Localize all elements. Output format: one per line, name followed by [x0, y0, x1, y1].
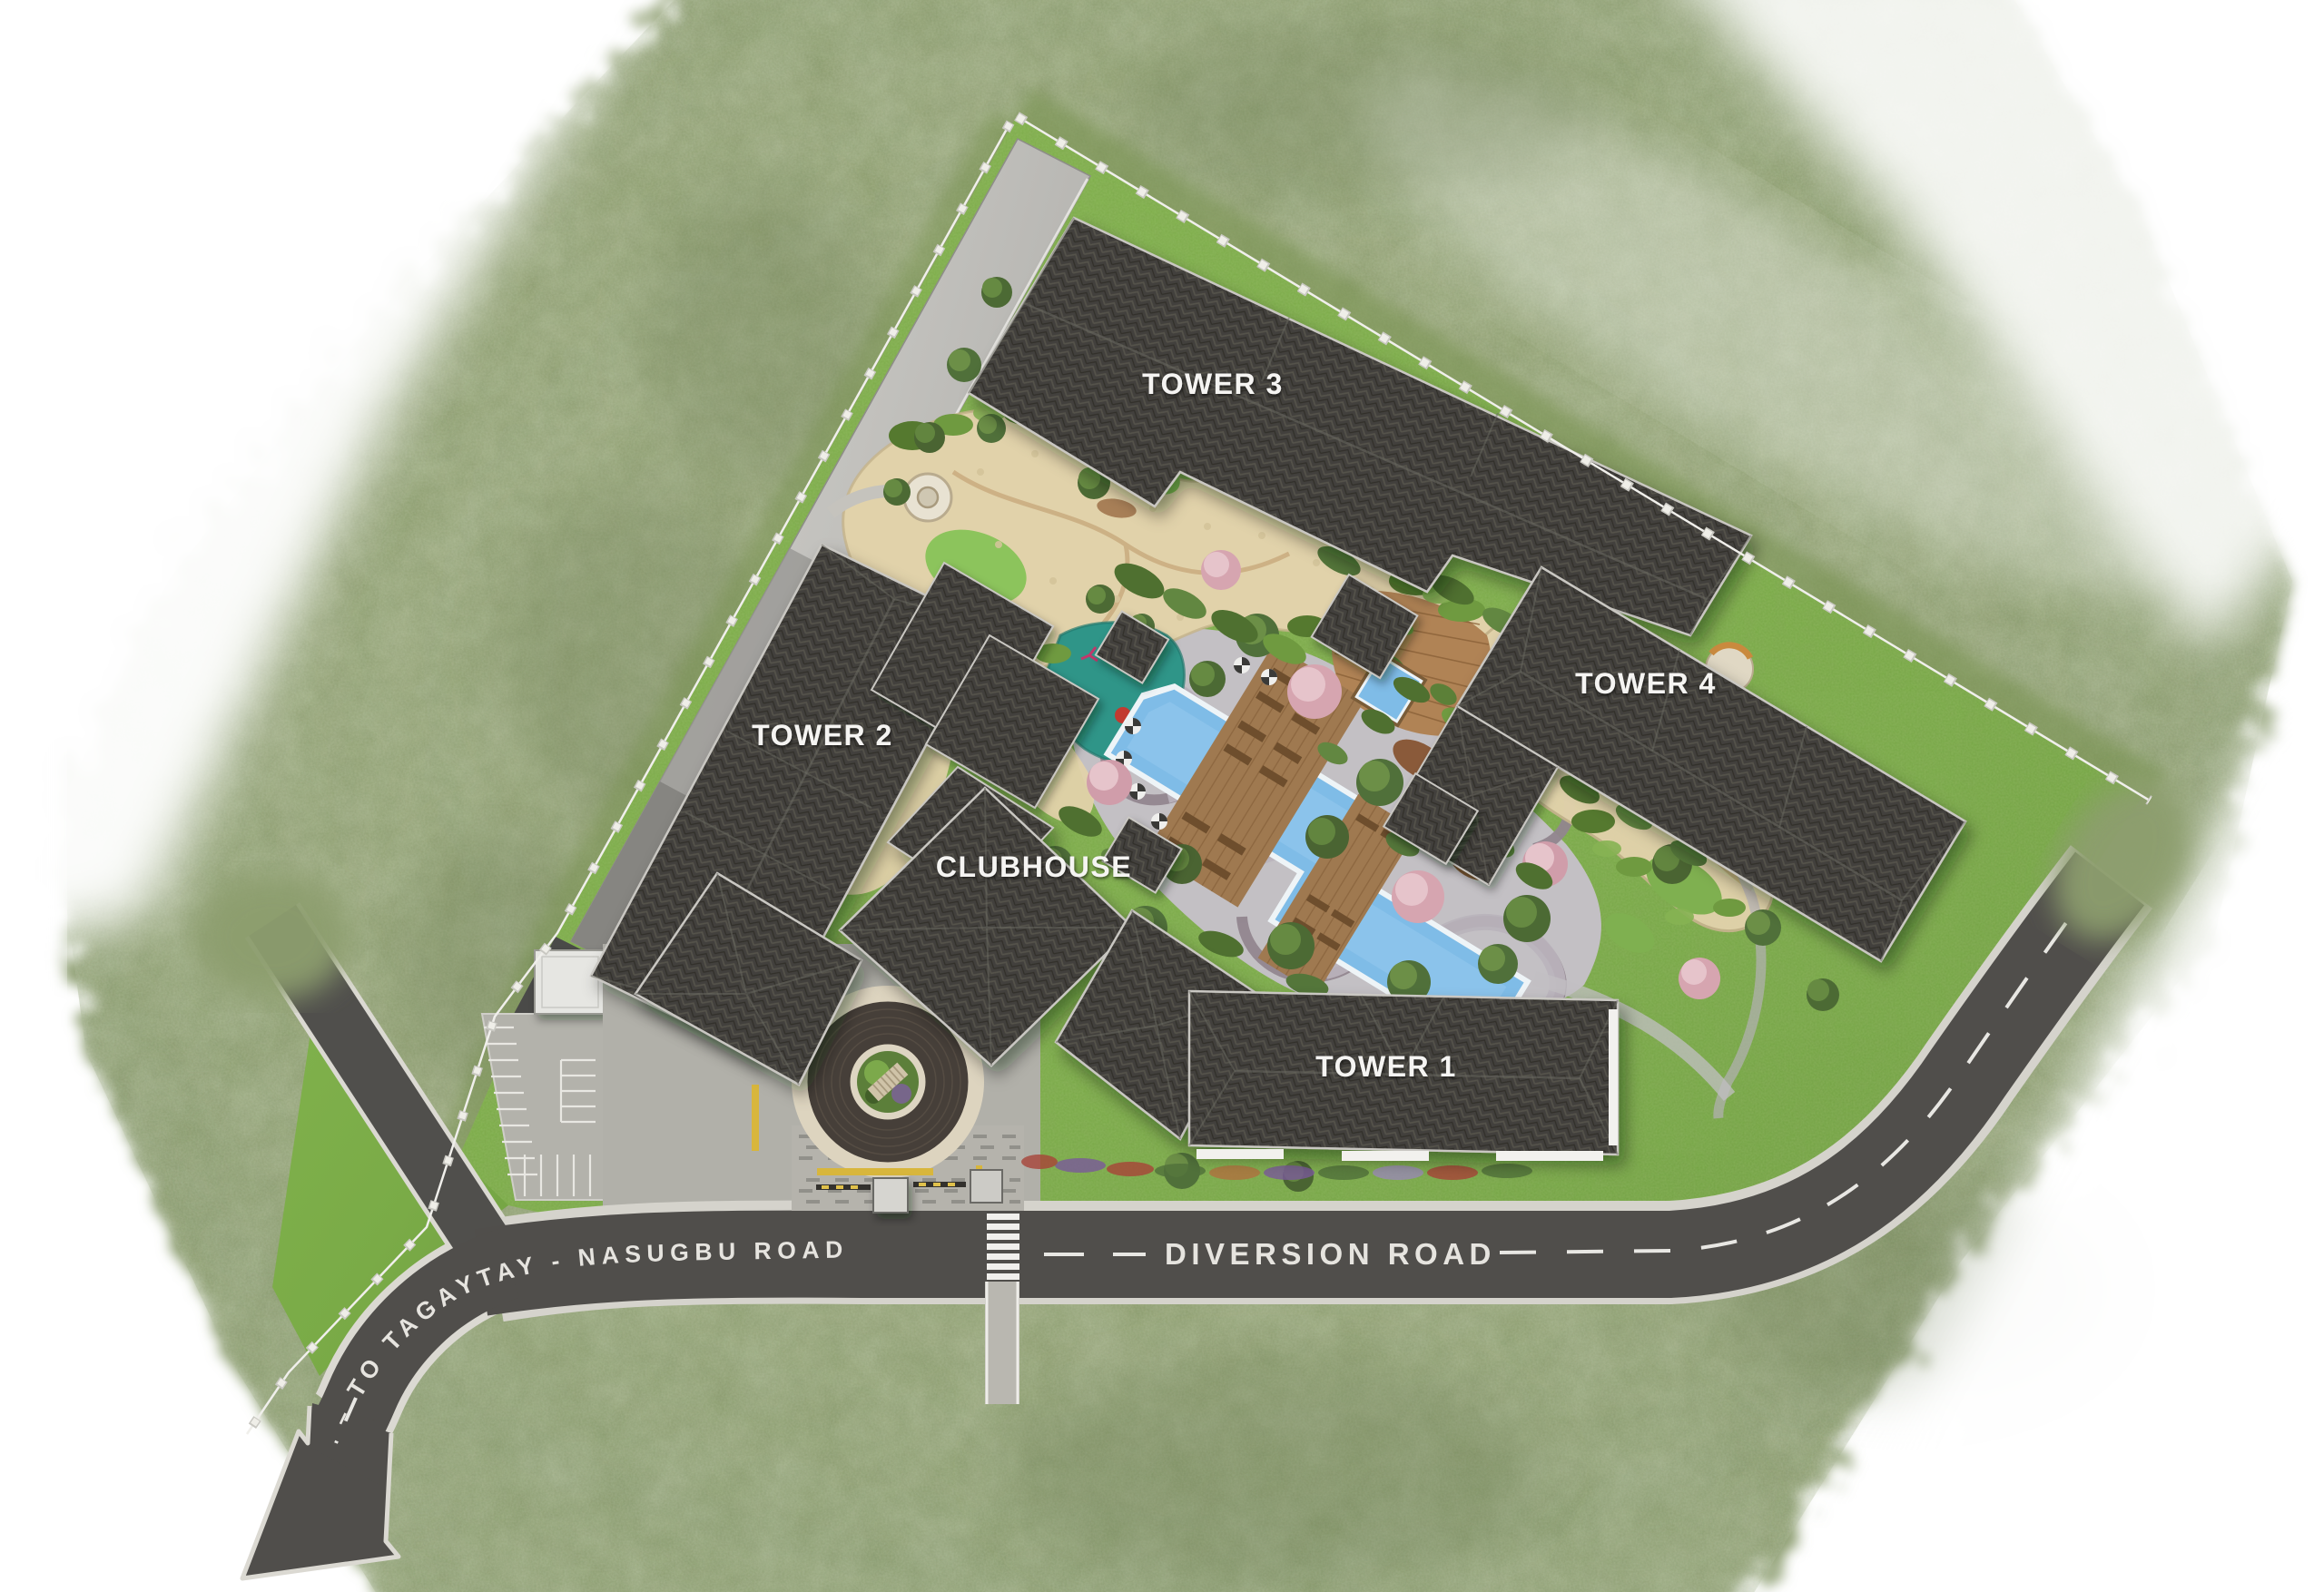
svg-text:TOWER 2: TOWER 2 — [752, 719, 893, 752]
svg-text:TOWER 3: TOWER 3 — [1142, 368, 1284, 400]
svg-text:CLUBHOUSE: CLUBHOUSE — [936, 850, 1132, 883]
svg-text:DIVERSION ROAD: DIVERSION ROAD — [1165, 1237, 1496, 1271]
svg-text:TOWER 1: TOWER 1 — [1315, 1050, 1457, 1083]
svg-text:TOWER 4: TOWER 4 — [1575, 667, 1717, 700]
